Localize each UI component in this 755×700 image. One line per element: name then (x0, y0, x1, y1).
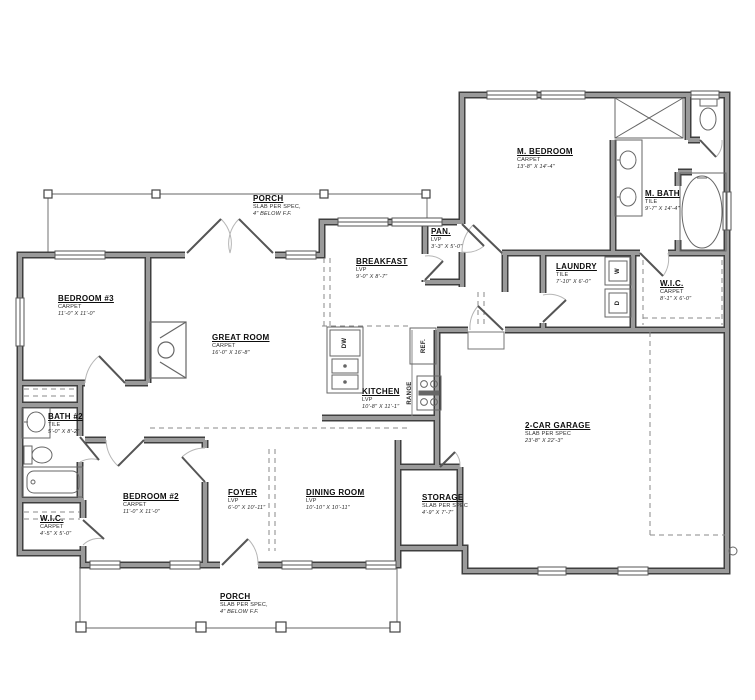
shower-fixture (615, 98, 683, 138)
master-toilet (700, 99, 717, 130)
room-label-storage: STORAGE SLAB PER SPEC 4'-9" X 7'-7" (422, 493, 468, 516)
room-label-bath-2: BATH #2 TILE 5'-0" X 8'-2" (48, 412, 83, 435)
room-label-m-bedroom: M. BEDROOM CARPET 13'-8" X 14'-4" (517, 147, 573, 170)
room-label-dining-room: DINING ROOM LVP 10'-10" X 10'-11" (306, 488, 364, 511)
room-label-wic-master: W.I.C. CARPET 8'-1" X 6'-0" (660, 279, 691, 302)
dryer-label: D (615, 301, 621, 306)
fireplace (150, 322, 186, 378)
refrigerator-label: REF. (421, 339, 427, 353)
room-label-garage: 2-CAR GARAGE SLAB PER SPEC 23'-8" X 22'-… (525, 421, 590, 444)
washer-label: W (615, 268, 621, 274)
floor-plan-canvas (0, 0, 755, 700)
master-vanity (615, 140, 642, 216)
range-label: RANGE (407, 381, 413, 404)
dishwasher-label: DW (342, 338, 348, 349)
bath2-toilet (24, 446, 52, 464)
room-label-porch-top: PORCH SLAB PER SPEC, 4" BELOW F.F. (253, 194, 301, 217)
bottom-porch-columns (76, 622, 400, 632)
room-label-laundry: LAUNDRY TILE 7'-10" X 6'-0" (556, 262, 597, 285)
room-label-foyer: FOYER LVP 6'-0" X 10'-11" (228, 488, 265, 511)
floor-plan: M. BEDROOM CARPET 13'-8" X 14'-4" M. BAT… (0, 0, 755, 700)
room-label-bedroom-3: BEDROOM #3 CARPET 11'-0" X 11'-0" (58, 294, 114, 317)
bath2-tub (22, 467, 83, 497)
room-label-m-bath: M. BATH TILE 9'-7" X 14'-4" (645, 189, 680, 212)
room-label-breakfast: BREAKFAST LVP 9'-0" X 8'-7" (356, 257, 408, 280)
room-label-bedroom-2: BEDROOM #2 CARPET 11'-0" X 11'-0" (123, 492, 179, 515)
room-label-pantry: PAN. LVP 3'-3" X 5'-0" (431, 227, 462, 250)
room-label-wic-bedroom2: W.I.C. CARPET 4'-5" X 5'-0" (40, 514, 71, 537)
room-label-porch-bottom: PORCH SLAB PER SPEC, 4" BELOW F.F. (220, 592, 268, 615)
bath2-vanity (22, 408, 50, 438)
room-label-great-room: GREAT ROOM CARPET 16'-0" X 16'-8" (212, 333, 270, 356)
room-label-kitchen: KITCHEN LVP 10'-8" X 11'-1" (362, 387, 400, 410)
master-tub (680, 173, 726, 251)
